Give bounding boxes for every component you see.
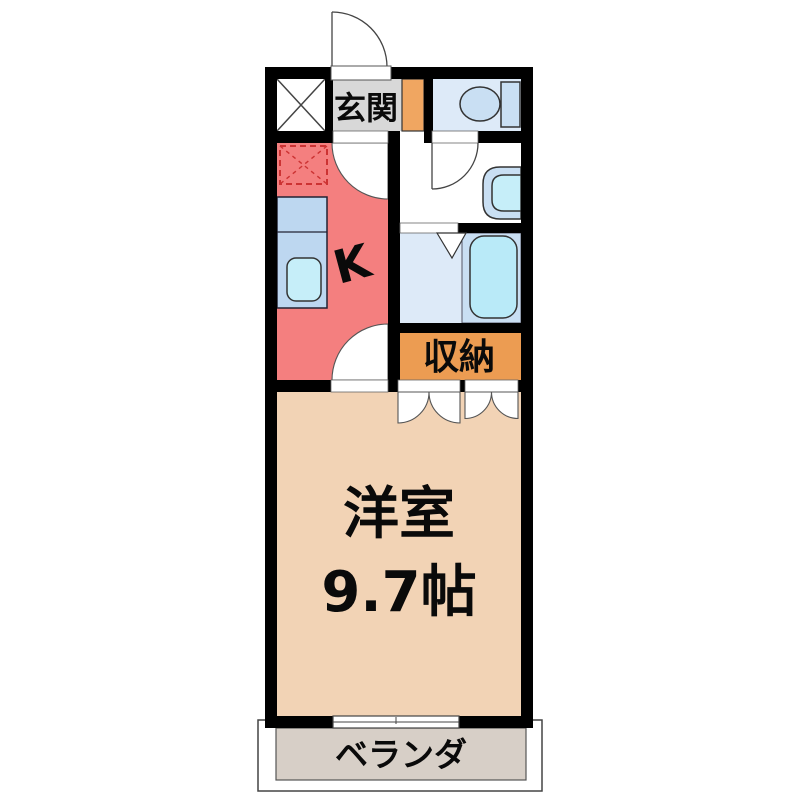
western-room-floor: [277, 392, 521, 716]
bathroom-door-opening: [400, 223, 458, 233]
wall-kitchen-wash: [388, 131, 400, 392]
shoe-cabinet: [402, 79, 424, 131]
kitchen-counter: [277, 197, 327, 308]
wall-right: [521, 67, 533, 728]
wall-bath-bottom: [388, 323, 533, 333]
sliding-window-icon: [333, 716, 459, 728]
toilet-tank: [501, 82, 520, 127]
closet-door-opening-right: [465, 380, 518, 392]
closet-door-opening-left: [398, 380, 460, 392]
entrance-label: 玄関: [334, 89, 398, 127]
western-room-label: 洋室: [343, 482, 455, 547]
wall-top: [265, 67, 533, 79]
washroom-door-opening: [432, 131, 478, 143]
veranda-label: ベランダ: [335, 735, 467, 774]
wall-ps-bottom: [265, 131, 333, 143]
wall-left: [265, 67, 277, 728]
washbasin-icon: [483, 167, 521, 219]
veranda: ベランダ: [258, 720, 542, 791]
entrance-door: [332, 12, 387, 67]
kitchen-sink-icon: [287, 258, 321, 301]
floor-plan: ベランダ: [0, 0, 800, 800]
bathtub-icon: [470, 236, 517, 318]
western-room-size: 9.7帖: [321, 560, 476, 625]
kitchen-room-door-opening: [331, 380, 388, 392]
entrance-step: [333, 131, 388, 143]
entrance-opening: [331, 66, 391, 80]
door-swing-arc-icon: [332, 12, 387, 67]
toilet-bowl: [460, 87, 500, 121]
storage-label: 収納: [423, 337, 495, 378]
